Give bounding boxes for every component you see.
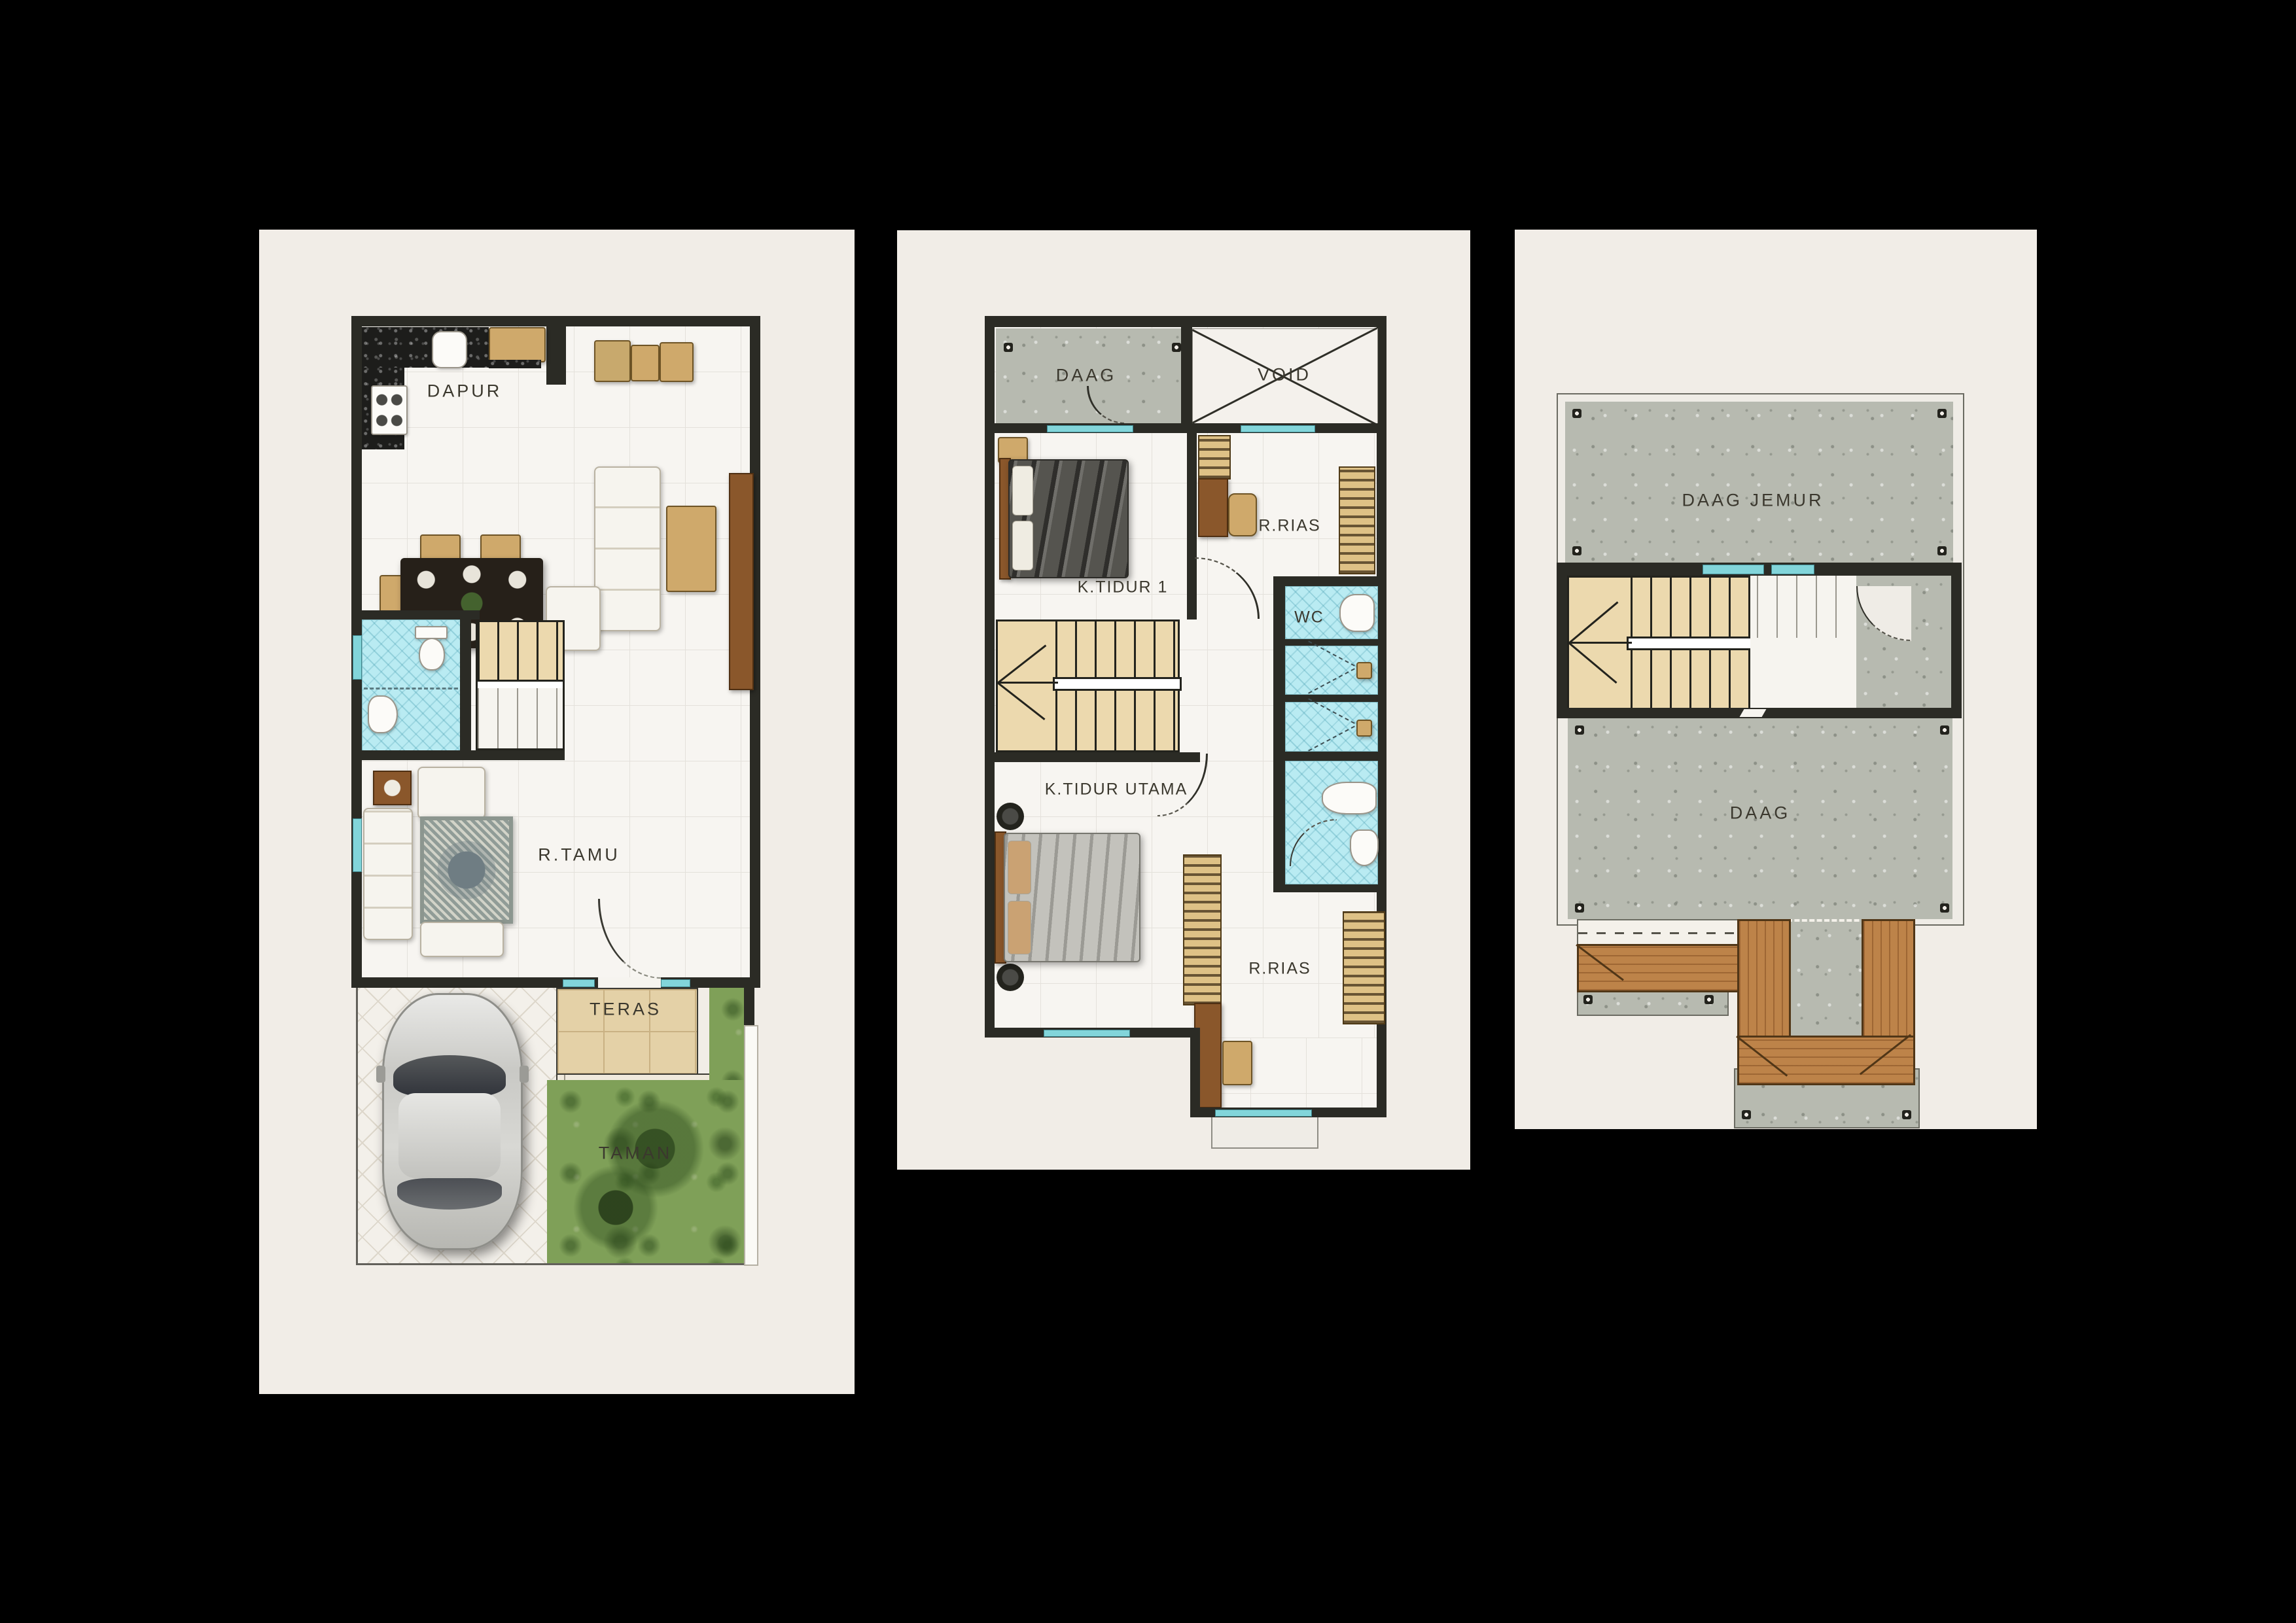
wardrobe: [1198, 435, 1231, 480]
room-label-k-tidur-utama: K.TIDUR UTAMA: [1045, 780, 1188, 799]
car-mirror: [376, 1066, 385, 1083]
room-label-k-tidur-1: K.TIDUR 1: [1078, 578, 1169, 597]
window: [353, 818, 362, 872]
window: [1703, 565, 1764, 574]
wall: [985, 316, 1386, 327]
wall-stub: [744, 979, 754, 1025]
wall: [460, 610, 471, 750]
toilet: [419, 638, 445, 671]
wall: [1285, 750, 1377, 761]
anchor-screw: [1575, 725, 1584, 735]
bed: [1008, 459, 1129, 578]
room-label-daag-jemur: DAAG JEMUR: [1682, 491, 1824, 511]
anchor-screw: [1940, 725, 1949, 735]
awning-roof: [1737, 1036, 1915, 1085]
pillow: [1012, 466, 1033, 515]
staircase: [1567, 576, 1754, 712]
stair-treads: [1055, 691, 1178, 750]
kitchen-sink: [432, 331, 467, 368]
car: [382, 993, 523, 1250]
anchor-screw: [1572, 409, 1581, 418]
shower-spray: [1308, 668, 1355, 693]
pillow: [1008, 901, 1031, 954]
nook-chair: [594, 340, 631, 382]
room-label-r-rias-top: R.RIAS: [1258, 517, 1320, 536]
bedside-speaker: [997, 964, 1024, 991]
boundary-line: [356, 1263, 757, 1265]
stair-under-flight: [478, 688, 563, 748]
wall: [1273, 586, 1285, 892]
car-roof: [398, 1093, 501, 1178]
wardrobe: [1183, 854, 1222, 1005]
room-label-r-rias-bottom: R.RIAS: [1248, 960, 1311, 979]
anchor-screw: [1172, 343, 1181, 352]
wall: [351, 750, 565, 760]
window: [353, 635, 362, 680]
wardrobe: [1343, 911, 1385, 1024]
tv-console: [729, 473, 754, 690]
sink: [368, 695, 398, 733]
wall: [1190, 1038, 1200, 1117]
window: [1215, 1109, 1312, 1117]
anchor-screw: [1572, 546, 1581, 555]
stair-treads: [478, 622, 563, 680]
wall: [985, 752, 1200, 762]
window: [1047, 425, 1133, 432]
bedside-speaker: [997, 803, 1024, 830]
kitchen-counter: [362, 327, 489, 368]
lamp-table: [373, 771, 412, 805]
stair-treads: [1631, 578, 1752, 637]
pillow: [1012, 521, 1033, 570]
anchor-screw: [1704, 995, 1714, 1004]
room-label-wc: WC: [1294, 608, 1324, 627]
bench: [420, 922, 504, 957]
kitchen-cabinet: [489, 327, 546, 362]
window: [1771, 565, 1814, 574]
wall: [1951, 563, 1962, 718]
balcony-outline: [1211, 1117, 1318, 1149]
window: [563, 979, 595, 987]
nook-table: [631, 345, 660, 381]
anchor-screw: [1940, 903, 1949, 913]
stair-rail: [1053, 677, 1182, 691]
toilet: [1322, 782, 1377, 814]
shower-head: [1356, 662, 1372, 679]
anchor-screw: [1004, 343, 1013, 352]
stair-winder: [997, 682, 1045, 720]
anchor-screw: [1937, 546, 1947, 555]
wall: [351, 977, 760, 988]
anchor-screw: [1583, 995, 1593, 1004]
daag-jemur-slab: [1565, 402, 1953, 563]
dresser: [1198, 478, 1228, 537]
coffee-table: [666, 506, 716, 592]
shower-room: [1285, 646, 1378, 695]
shower-room: [1285, 702, 1378, 752]
pillow: [1008, 841, 1031, 894]
stair-treads: [1055, 621, 1178, 677]
stair-winder: [1569, 601, 1618, 643]
landing-treads: [1757, 576, 1852, 638]
anchor-screw: [1902, 1110, 1911, 1119]
stair-winder: [1568, 642, 1617, 684]
wall-pillar: [546, 317, 566, 385]
window: [1241, 425, 1315, 432]
sofa: [363, 808, 413, 940]
front-door-opening: [598, 977, 661, 988]
wall-pillar: [1181, 327, 1192, 423]
roof-u-center: [1787, 919, 1867, 1041]
toilet: [1339, 594, 1375, 632]
stair-winder: [998, 644, 1046, 683]
wall: [985, 423, 1386, 433]
nook-chair: [660, 342, 694, 382]
room-label-void: VOID: [1258, 365, 1311, 385]
staircase: [476, 620, 565, 750]
stair-winder: [1569, 642, 1632, 644]
car-mirror: [520, 1066, 529, 1083]
shower-head: [1356, 720, 1372, 737]
anchor-screw: [1937, 409, 1947, 418]
rug: [420, 816, 513, 924]
wall: [1285, 883, 1377, 892]
window: [1044, 1030, 1130, 1037]
garden: [709, 988, 744, 1080]
car-windshield: [393, 1055, 506, 1097]
stair-landing: [1750, 576, 1856, 708]
boundary-line: [356, 988, 358, 1265]
car-rear-window: [397, 1178, 502, 1210]
dressing-table: [1222, 1041, 1252, 1085]
sink: [1350, 829, 1379, 866]
room-label-taman: TAMAN: [599, 1143, 673, 1164]
anchor-screw: [1742, 1110, 1751, 1119]
anchor-screw: [1575, 903, 1584, 913]
room-label-dapur: DAPUR: [427, 381, 503, 402]
room-label-daag: DAAG: [1730, 803, 1791, 824]
shower-spray: [1308, 698, 1355, 724]
side-fence: [744, 1025, 758, 1266]
panel-ground-floor: DAPUR: [259, 230, 855, 1394]
wall: [1273, 576, 1386, 586]
room-label-daag: DAAG: [1056, 366, 1117, 386]
wardrobe: [1339, 466, 1375, 574]
panel-upper-floor: DAAG VOID K.TIDUR 1 R.RIAS: [897, 230, 1470, 1170]
wall: [1557, 563, 1567, 718]
stair-treads: [1631, 650, 1752, 710]
armchair: [417, 767, 486, 819]
panel-roof-plan: DAAG JEMUR DAAG: [1515, 230, 2037, 1129]
floor-plans-poster: DAPUR: [0, 0, 2296, 1623]
garden-shrub: [567, 1165, 665, 1250]
door-marker: [1740, 709, 1767, 717]
toilet: [415, 626, 448, 639]
stair-winder: [998, 682, 1058, 684]
bed: [1004, 833, 1140, 962]
sofa: [594, 466, 661, 631]
bathroom-divider: [364, 688, 458, 689]
room-label-teras: TERAS: [590, 1000, 662, 1020]
chair: [1228, 493, 1257, 536]
staircase: [996, 620, 1180, 752]
room-label-r-tamu: R.TAMU: [538, 845, 620, 865]
stove: [371, 385, 408, 435]
shower-spray: [1308, 725, 1355, 751]
window: [661, 979, 690, 987]
kitchen-shelf: [489, 360, 541, 368]
stair-rail: [1627, 637, 1756, 650]
